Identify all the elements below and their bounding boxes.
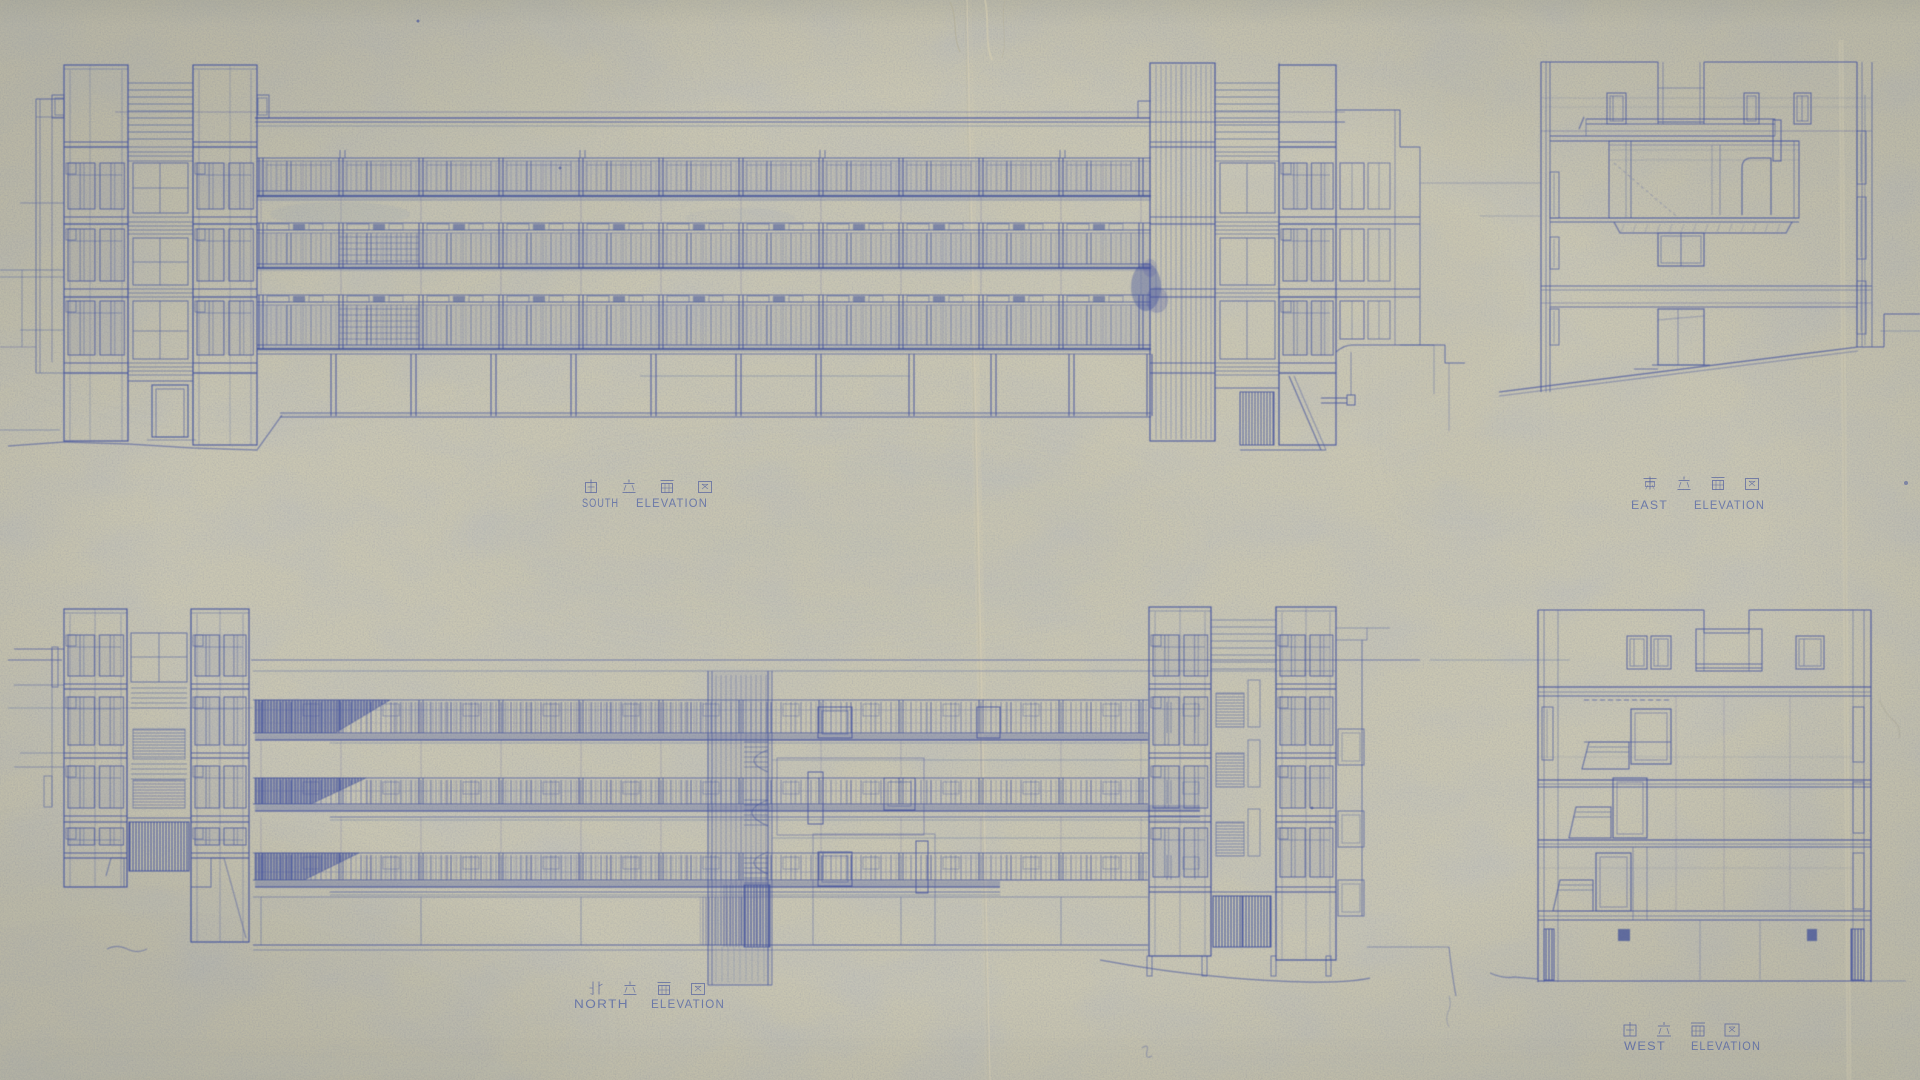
svg-text:EAST: EAST bbox=[1631, 498, 1668, 512]
svg-text:NORTH: NORTH bbox=[574, 999, 629, 1011]
svg-text:ELEVATION: ELEVATION bbox=[1694, 498, 1765, 512]
svg-text:SOUTH: SOUTH bbox=[582, 498, 619, 510]
svg-text:ELEVATION: ELEVATION bbox=[636, 498, 708, 510]
svg-text:WEST: WEST bbox=[1624, 1039, 1666, 1053]
svg-text:ELEVATION: ELEVATION bbox=[1691, 1039, 1761, 1053]
svg-text:ELEVATION: ELEVATION bbox=[651, 999, 725, 1011]
